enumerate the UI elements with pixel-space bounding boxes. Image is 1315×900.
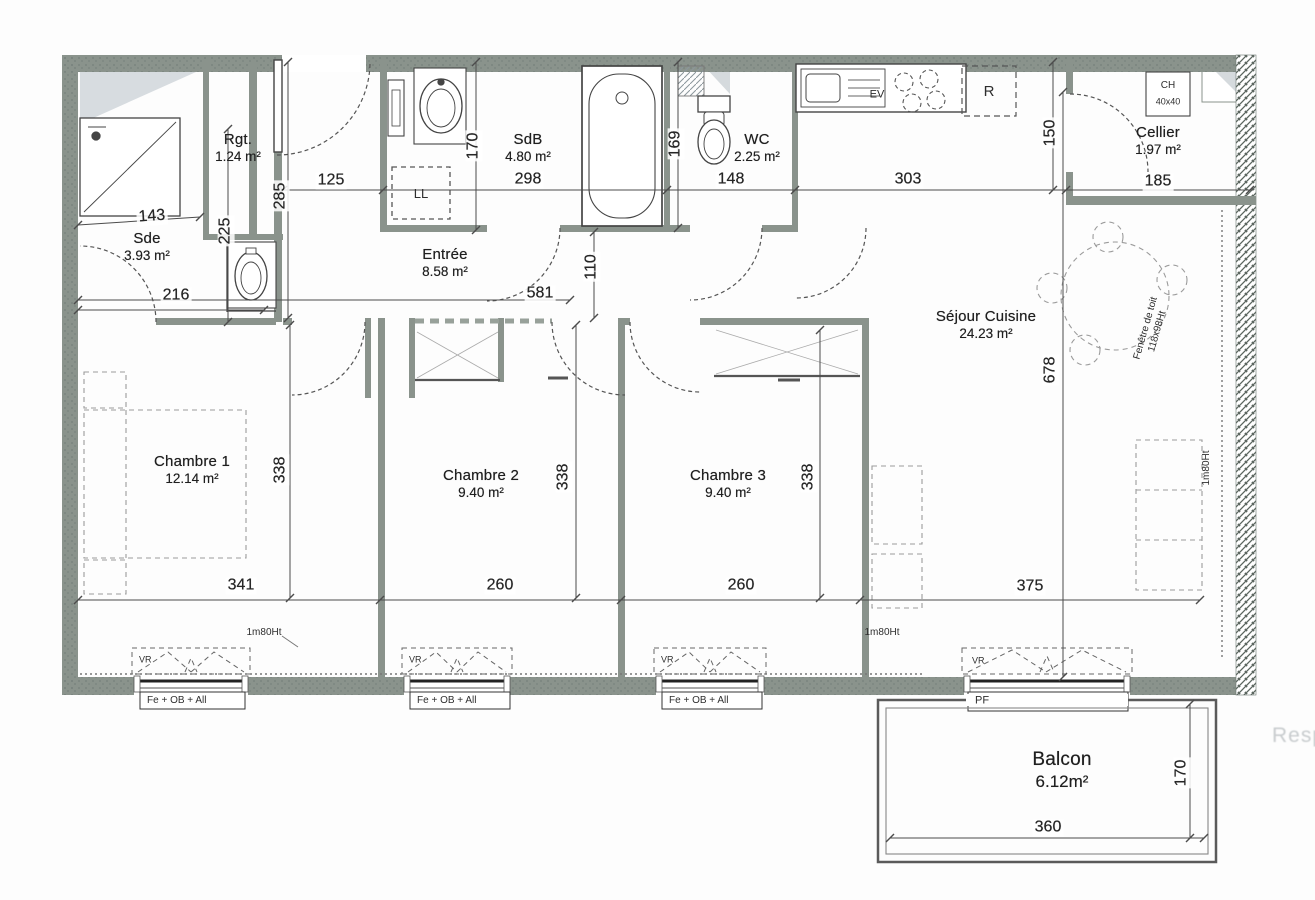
sdb-door-arc bbox=[487, 228, 560, 301]
water-heater bbox=[1146, 72, 1190, 116]
kitchen-counter bbox=[796, 64, 966, 112]
floor-plan-drawing bbox=[0, 0, 1315, 900]
fridge bbox=[962, 66, 1016, 116]
towel-radiator bbox=[388, 80, 404, 136]
sofa bbox=[1136, 440, 1202, 590]
sejour-door-arc bbox=[796, 228, 866, 298]
cellier-door-arc bbox=[1070, 94, 1148, 172]
balcony bbox=[878, 694, 1216, 862]
wardrobe-chambre3 bbox=[714, 330, 860, 380]
entrance-door-arc bbox=[277, 62, 370, 155]
dining-table bbox=[1037, 222, 1187, 365]
floor-plan-page: { "watermark": {"text": "Resp"}, "colors… bbox=[0, 0, 1315, 900]
vanity-basin bbox=[414, 68, 466, 144]
bed-chambre1 bbox=[84, 372, 246, 594]
fixtures bbox=[80, 64, 1190, 380]
chambre1-door-arc bbox=[292, 322, 365, 395]
sde-door-arc bbox=[80, 246, 156, 322]
entrance-opening bbox=[282, 55, 366, 72]
roof-edge-hatch bbox=[1236, 55, 1256, 695]
window-chambre1 bbox=[132, 648, 250, 709]
window-chambre3 bbox=[654, 648, 766, 709]
armchair bbox=[872, 466, 922, 608]
shower bbox=[80, 118, 180, 216]
wc-door-arc bbox=[690, 228, 762, 300]
bathtub bbox=[582, 66, 662, 226]
chambre2-door-arc bbox=[552, 322, 625, 395]
washing-machine-slot bbox=[392, 167, 450, 219]
window-chambre2 bbox=[402, 648, 512, 709]
pedestal-basin bbox=[227, 242, 276, 308]
watermark-text: Resp bbox=[1272, 724, 1315, 748]
entrance-door-leaf bbox=[274, 60, 282, 152]
chambre3-door-arc bbox=[630, 322, 700, 392]
wardrobe-chambre2 bbox=[415, 332, 568, 380]
